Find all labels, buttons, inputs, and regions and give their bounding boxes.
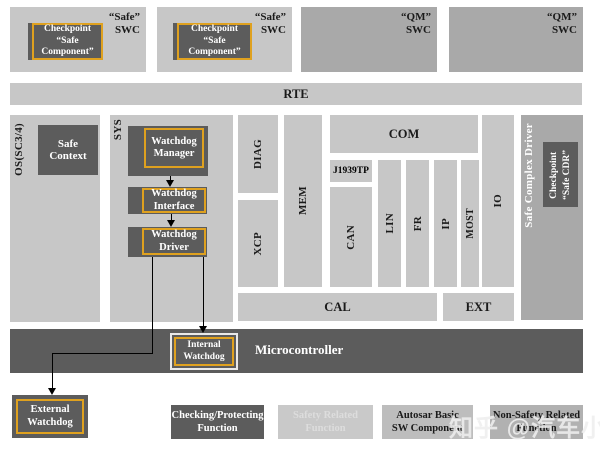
safe-swc-box-2: “Safe” SWC Checkpoint “Safe Component” [157,7,292,72]
most-column: MOST [461,160,479,287]
safe-context-box: Safe Context [38,125,98,175]
mem-column: MEM [284,115,322,287]
checkpoint-safe-component-box-1: Checkpoint “Safe Component” [28,23,103,60]
external-watchdog-label: External Watchdog [16,399,84,434]
io-label: IO [492,194,504,207]
j1939tp-label: J1939TP [333,166,369,176]
qm-swc-label-2: “QM” SWC [547,11,577,36]
diag-column: DIAG [238,115,278,193]
safe-swc-label-2: “Safe” SWC [255,11,286,36]
cal-bar: CAL [238,293,437,321]
sys-label: SYS [112,119,124,140]
qm-swc-label-1: “QM” SWC [401,11,431,36]
safe-complex-driver-column: Safe Complex Driver Checkpoint “Safe CDR… [521,115,583,320]
connector-to-external-watchdog [52,353,53,389]
internal-watchdog-label: Internal Watchdog [174,337,234,366]
com-label: COM [389,127,420,142]
qm-swc-box-1: “QM” SWC [301,7,437,72]
watchdog-architecture-diagram: “Safe” SWC Checkpoint “Safe Component” “… [0,0,600,453]
cal-label: CAL [324,300,350,315]
connector-driver-to-internal-watchdog [203,257,204,327]
com-box: COM [330,115,478,153]
watchdog-manager-label: Watchdog Manager [144,128,204,168]
j1939tp-box: J1939TP [330,160,372,182]
checkpoint-safe-component-box-2: Checkpoint “Safe Component” [173,23,252,60]
most-label: MOST [465,208,476,239]
ip-column: IP [434,160,457,287]
ip-label: IP [440,218,452,230]
legend-safety-related: Safety Related Function [278,405,373,439]
lin-label: LIN [384,213,396,233]
checkpoint-safe-component-label-1: Checkpoint “Safe Component” [32,23,103,60]
io-column: IO [482,115,514,287]
checkpoint-safe-component-label-2: Checkpoint “Safe Component” [177,23,252,60]
microcontroller-label: Microcontroller [255,342,343,358]
checkpoint-safe-cdr-label: Checkpoint “Safe CDR” [548,150,574,200]
safe-complex-driver-label: Safe Complex Driver [523,123,535,228]
external-watchdog-box: External Watchdog [12,395,88,438]
mem-label: MEM [297,186,309,215]
qm-swc-box-2: “QM” SWC [449,7,583,72]
fr-column: FR [406,160,429,287]
os-label: OS(SC3/4) [13,123,25,176]
can-label: CAN [345,225,357,250]
rte-label: RTE [283,87,308,102]
lin-column: LIN [378,160,401,287]
watermark: 知乎 @汽车小T [449,408,600,443]
arrowhead-driver-to-internal-watchdog [199,326,207,333]
ext-bar: EXT [443,293,514,321]
checkpoint-safe-cdr-box: Checkpoint “Safe CDR” [543,142,578,207]
watchdog-driver-box: Watchdog Driver [128,227,207,257]
rte-bar: RTE [10,83,582,105]
arrowhead-to-external-watchdog [48,388,56,395]
can-column: CAN [330,187,372,287]
arrowhead-manager-to-interface [166,180,174,187]
connector-driver-down-segment [152,257,153,354]
watchdog-driver-label: Watchdog Driver [142,228,206,255]
watchdog-interface-label: Watchdog Interface [142,188,206,213]
xcp-label: XCP [252,232,264,256]
watchdog-manager-box: Watchdog Manager [128,126,208,176]
watchdog-interface-box: Watchdog Interface [128,187,207,214]
arrowhead-interface-to-driver [167,220,175,227]
ext-label: EXT [466,300,492,315]
diag-label: DIAG [252,139,264,169]
safe-swc-box-1: “Safe” SWC Checkpoint “Safe Component” [10,7,146,72]
connector-horizontal-segment [52,353,153,354]
xcp-column: XCP [238,200,278,287]
microcontroller-bar: Internal Watchdog Microcontroller [10,329,583,373]
os-block: OS(SC3/4) Safe Context [10,115,100,322]
legend-checking-protecting: Checking/Protecting Function [171,405,264,439]
internal-watchdog-box: Internal Watchdog [170,333,238,370]
fr-label: FR [412,216,424,231]
safe-swc-label-1: “Safe” SWC [109,11,140,36]
